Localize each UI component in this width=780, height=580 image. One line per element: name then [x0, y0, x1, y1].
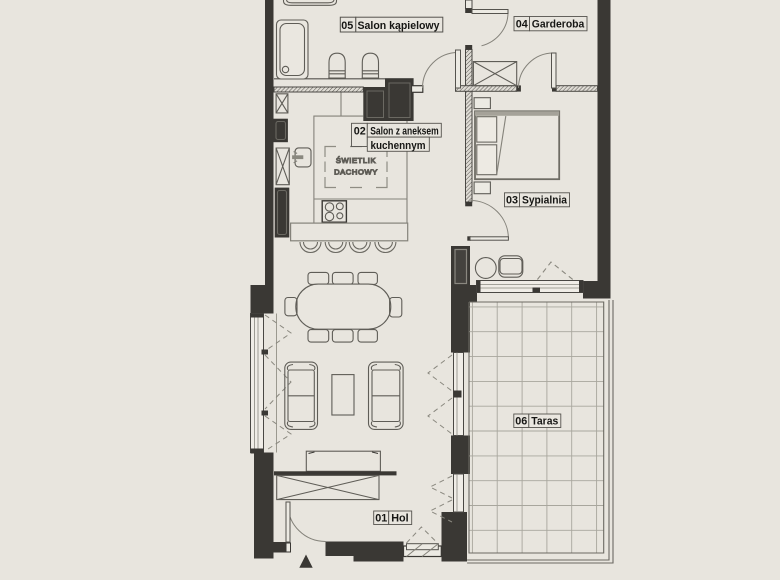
svg-text:ŚWIETLIK: ŚWIETLIK [336, 156, 376, 165]
svg-text:kuchennym: kuchennym [371, 140, 426, 152]
svg-text:06: 06 [515, 416, 527, 428]
svg-text:Garderoba: Garderoba [532, 19, 585, 31]
svg-text:Salon kąpielowy: Salon kąpielowy [358, 20, 440, 32]
svg-text:05: 05 [341, 20, 353, 32]
svg-text:01: 01 [375, 513, 387, 525]
svg-text:DACHOWY: DACHOWY [334, 168, 378, 177]
svg-text:Hol: Hol [391, 513, 408, 525]
svg-text:04: 04 [516, 19, 528, 31]
svg-text:03: 03 [506, 195, 518, 207]
svg-text:Taras: Taras [531, 416, 558, 428]
svg-text:Sypialnia: Sypialnia [522, 195, 568, 207]
svg-text:02: 02 [354, 126, 366, 138]
svg-text:Salon z aneksem: Salon z aneksem [370, 126, 439, 138]
